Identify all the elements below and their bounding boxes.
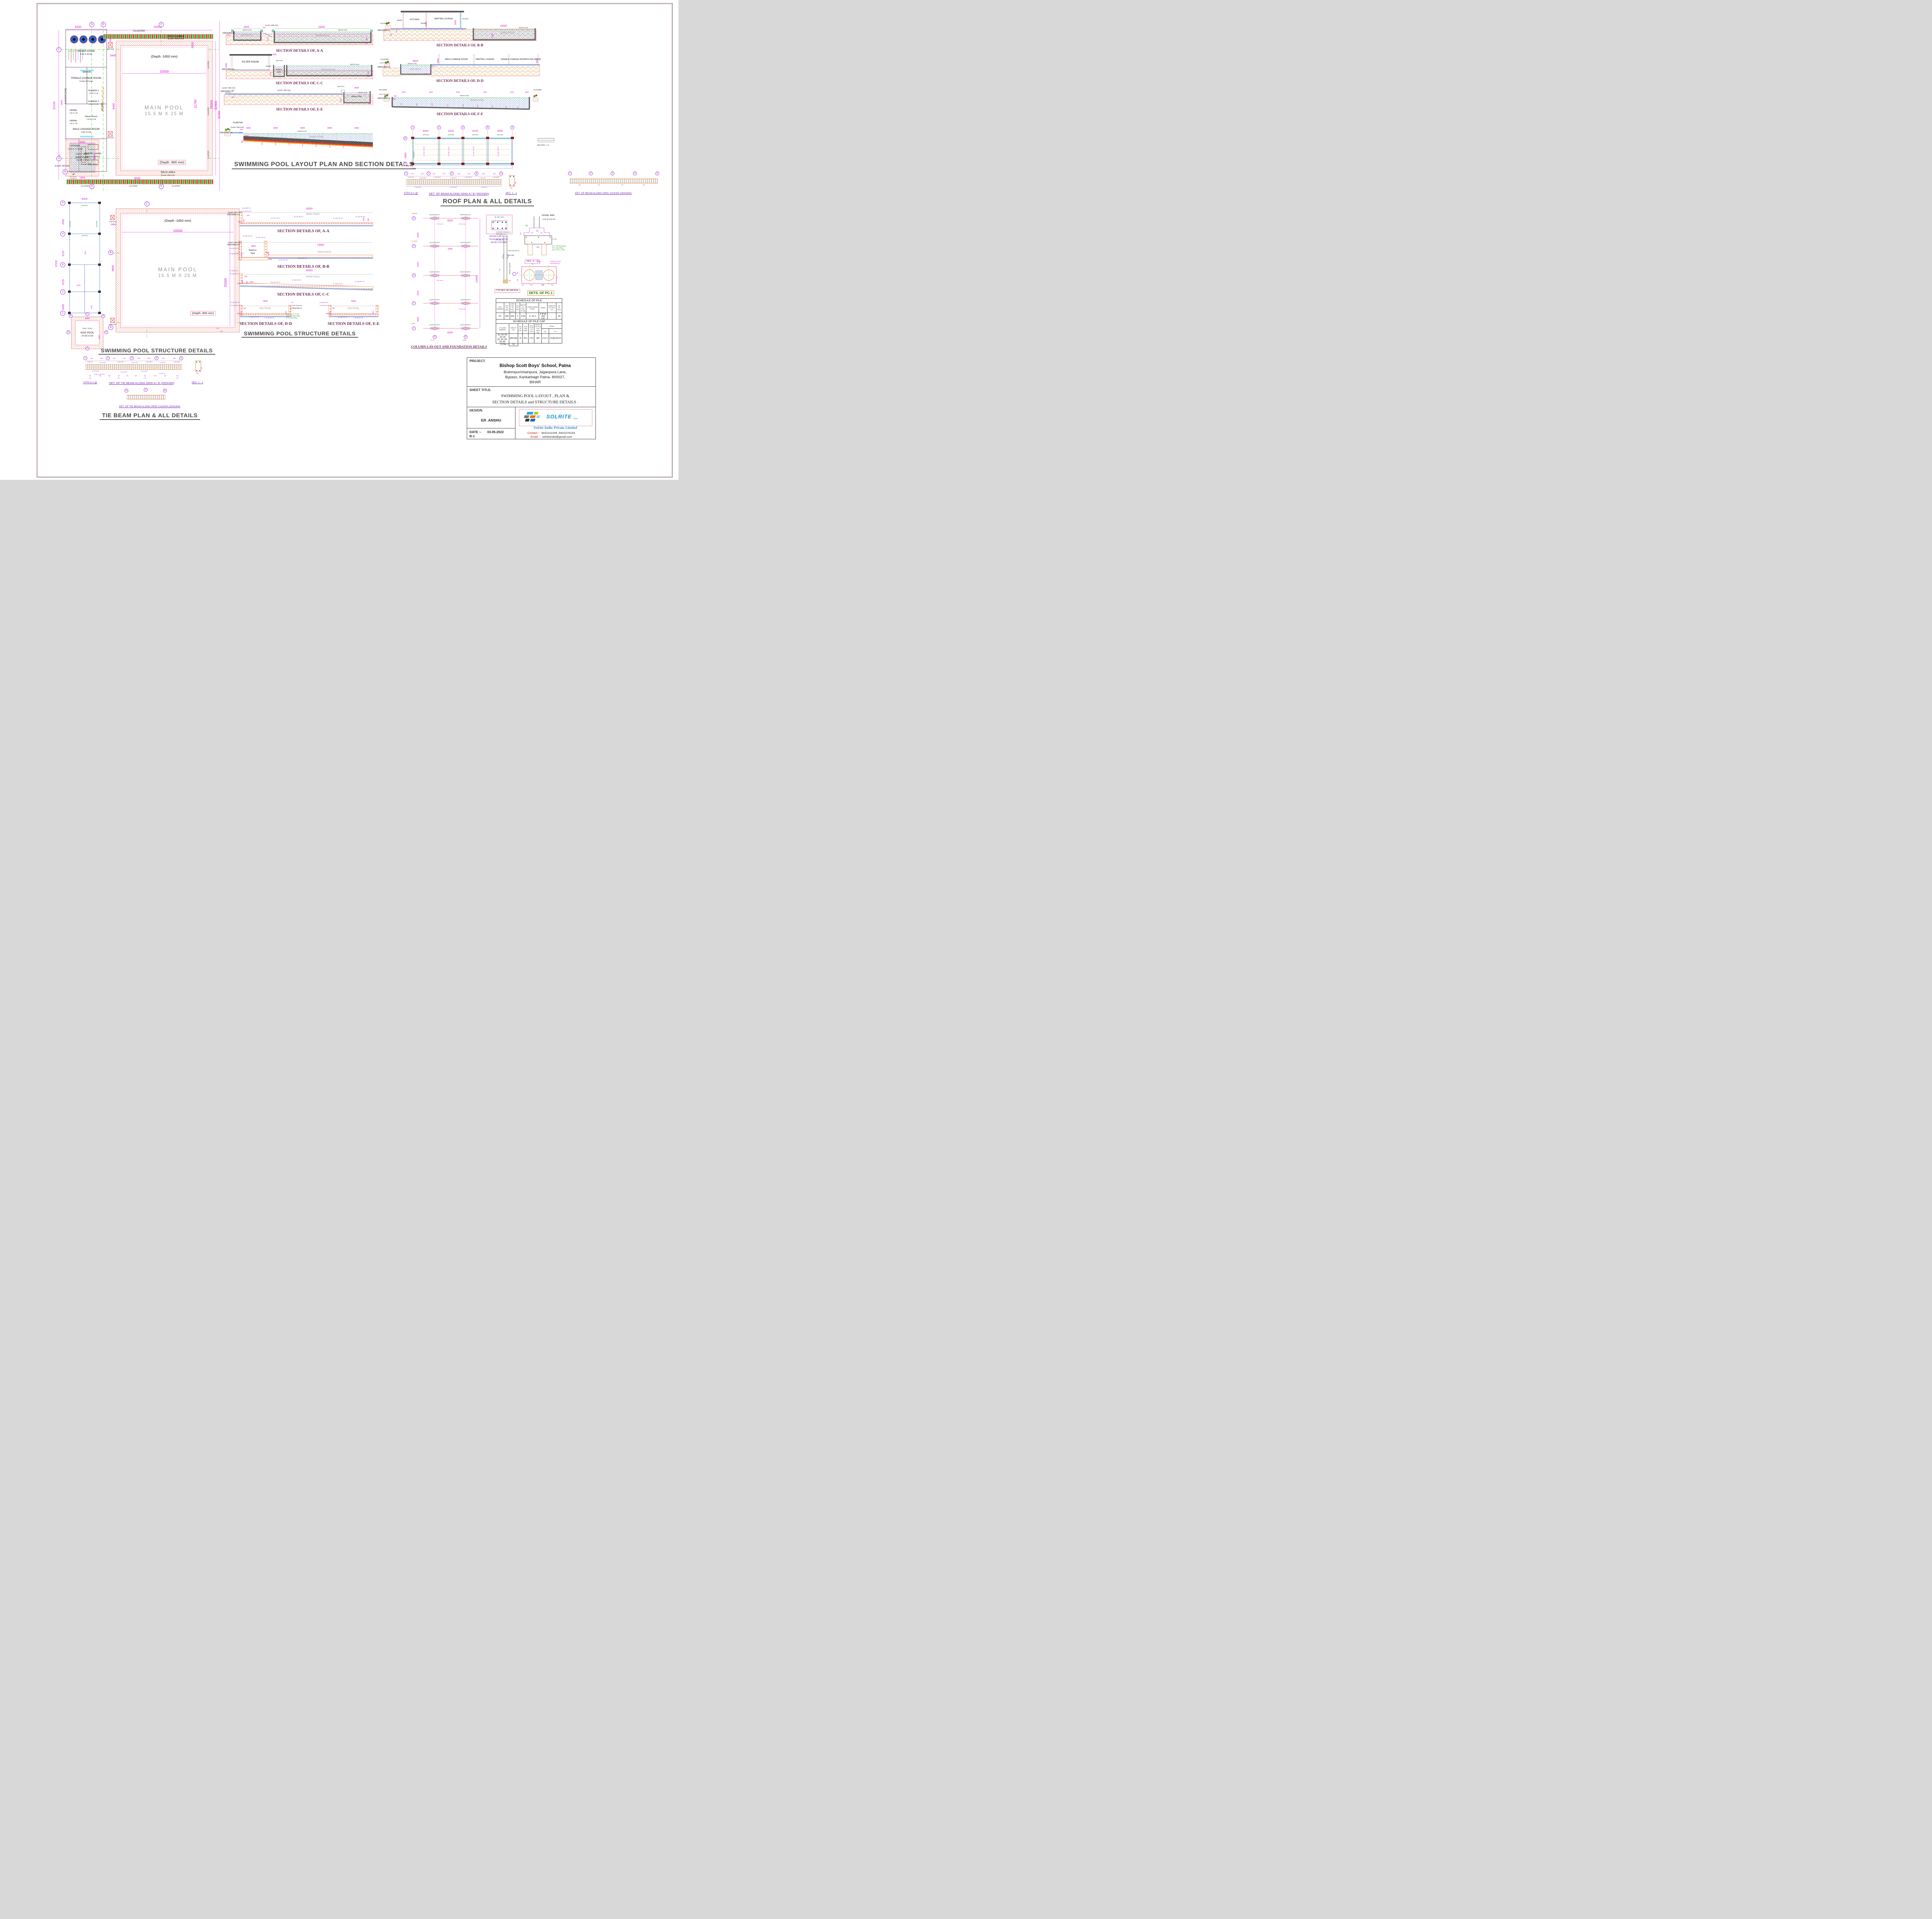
grid-bubble: 3 (130, 356, 134, 360)
rebar-label: 8 # @ 150 C/C (231, 302, 240, 304)
dim: 900 (366, 37, 368, 41)
grid-bubble: E (101, 22, 106, 27)
dim: 300 (394, 95, 397, 97)
grid-bubble: C (145, 201, 150, 206)
grid-bubble: 3 (611, 172, 614, 175)
dim: 200 (598, 185, 600, 186)
col-header: PILE DIA (mm) (504, 303, 510, 313)
grid-bubble: 3 (461, 126, 465, 129)
dim: 300 (237, 283, 240, 285)
grid-bubble: 2 (427, 172, 430, 175)
planter-label: PLANTER (381, 23, 389, 25)
dim: 1500 (241, 253, 243, 257)
roof-plan-drawing (402, 126, 522, 171)
roof-title: ROOF PLAN & ALL DETAILS (440, 199, 534, 206)
struct-section-aa: (Level +600 mm) GROUND LV. 8 # @ 150 C/C… (232, 209, 375, 227)
dim: 4976 (91, 305, 93, 309)
dim: 21849 (476, 275, 479, 282)
water-level: WATER LEVEL (519, 27, 528, 29)
dowel-label: DOWEL BAR (542, 215, 554, 217)
plaster-label: PLASTER (81, 185, 89, 187)
dim: 3000 (402, 92, 406, 93)
dim: 3000 (455, 20, 457, 25)
cell: 6-12 # (541, 334, 549, 343)
col-header: PILE MARKED (496, 303, 504, 313)
level-label: (Level +500 mm) (277, 90, 291, 92)
ground-level: GROUND LV. (378, 98, 390, 100)
cell-line: B1, B2, B3, B4, B5 (498, 338, 507, 343)
structure-sections-title: SWIMMING POOL STRUCTURE DETAILS (241, 331, 358, 338)
grid-bubble: 2 (437, 126, 441, 129)
dim: 6000 (63, 304, 65, 309)
beam-size: (250X400) (82, 235, 88, 237)
dim: 3000 (273, 127, 278, 130)
rebar-label: MAIN BAR (508, 255, 514, 257)
rebar-label: 12 # @ 175 C/C (333, 218, 343, 219)
dim: 450 (530, 285, 532, 286)
room-size: 1.5 M X 2 M (87, 119, 96, 121)
rebar-label: 1-16 # EXT. (117, 362, 124, 363)
column-layout-drawing (417, 211, 483, 342)
dim: 150 (108, 376, 111, 377)
pool-name: KID POOL (348, 308, 360, 310)
grid-bubble: D (66, 330, 70, 334)
grid-bubble: A (403, 136, 407, 140)
section-dd-drawing (381, 54, 541, 77)
dim: 225 (126, 376, 128, 377)
dim: 3150 (267, 37, 269, 41)
tie-beam-drawing (124, 390, 168, 404)
level-label: (Level +600 mm) (380, 63, 390, 64)
dim: 175 (134, 376, 137, 377)
manhole-label: MAN HOLE (107, 138, 114, 139)
struct-aa-drawing (232, 209, 375, 227)
manhole-label: MAN HOLE (276, 60, 283, 62)
dim: 1161 (447, 104, 449, 107)
ground-level: GROUND LV. (222, 69, 235, 71)
room-size: 2.275 M X 4.975 M (68, 148, 83, 150)
dim: 2050 (457, 173, 460, 175)
dim: 1750 (432, 173, 435, 175)
dim: 300 (517, 279, 519, 281)
project-name: Bishop Scott Boys' School, Patna (500, 364, 571, 369)
planter-label: PLANTER (133, 30, 145, 33)
col-header: NO OF PILE (556, 303, 562, 313)
rebar-label: 10 # @ 200 C/C (298, 258, 307, 260)
dim: 175 (117, 376, 120, 377)
dim: 1500 (370, 97, 372, 100)
tie-title: TIE BEAM PLAN & ALL DETAILS (100, 413, 200, 420)
dim: 1650 (368, 71, 370, 75)
pile-typ-detail: EXISTING GROUND LV (ORIGINAL G.L.) CUT O… (495, 231, 515, 287)
dim: 1500 (162, 358, 165, 360)
level-label: (Level +600 mm) (379, 94, 389, 95)
dim: 1000 (525, 92, 529, 93)
total-label: TOTAL = (496, 343, 509, 346)
grid-bubble: E (85, 347, 89, 350)
grid-bubble: 3 (450, 172, 454, 175)
rebar-label: 10 # @ 175 C/C (256, 237, 265, 239)
ground-note: EXISTING GROUND LV (496, 232, 511, 233)
dim: 32400 (214, 101, 218, 110)
dim: 50 (462, 28, 464, 30)
ref-label: (h) (536, 230, 539, 232)
rebar-label: 10 # @ 150 C/C (230, 274, 239, 275)
grid-bubble: 4 (60, 231, 65, 236)
water-level: WATER LEVEL (243, 30, 252, 31)
tank-label: Balance (276, 69, 282, 71)
column-mark: B5(250X400)PC1 (460, 214, 471, 216)
sheet-title-label: SHEET TITLE. (469, 388, 492, 392)
schedule-of-pile-cap: SCHEDULE OF PILE CAP COLUMN MARKED SIZE … (496, 319, 562, 346)
dim: 2050 (147, 358, 150, 360)
room-label: CHANGE-2 (88, 101, 99, 103)
level-label: (Level +600 mm) (228, 212, 241, 214)
dim: 225 (643, 185, 645, 186)
column-mark: B4(250X400)PC1 (460, 242, 471, 244)
level-label: (Level +600 mm) (222, 87, 235, 89)
dim: 1800 (80, 177, 85, 180)
sheet-title-row: SHEET TITLE. SWIMMING POOL LAYOUT , PLAN… (467, 387, 595, 407)
dim: 1609 (276, 143, 277, 146)
pool-name: KIDS POOL (241, 35, 253, 37)
rebar-label: 12 # @ 175 C/C (333, 284, 343, 285)
column-mark: A4(250X400)PC1 (429, 242, 440, 244)
cutoff-label: CUT OFF LV. (495, 240, 503, 241)
plaster-label: PLASTER (129, 185, 138, 187)
col-header: DEPTH OF PILE 'D' (M) (520, 303, 526, 313)
rebar-label: 2-12# TH. (160, 362, 166, 364)
col-header: LONGITUDINAL STEEL (526, 303, 539, 313)
pool-name: MAIN POOL (470, 99, 484, 102)
note: 75 Th. Flat Brick Soling (552, 246, 566, 247)
note: 75 ℄ of col. (437, 280, 443, 282)
pile-typ-caption: TYP DET. OF U/R PILE (495, 289, 520, 293)
dim: 4500 (85, 318, 90, 320)
dim: 300 (231, 97, 235, 99)
dim: 6000 (448, 248, 452, 251)
grid-bubble: 4 (474, 172, 478, 175)
section-caption: SECTION DETAILS OF, F-F (437, 113, 483, 117)
ground-level: GROUND LV. (378, 30, 390, 32)
dim: 150 (578, 185, 581, 186)
rebar-label: 10 # @ 200 C/C (355, 281, 364, 283)
dim: 3000 (537, 58, 539, 63)
grid-bubble: 5 (60, 201, 65, 206)
section-bb-drawing (381, 10, 539, 42)
room-label: WAITING LOUNGE (476, 59, 494, 61)
email-value: solriteindia@gmail.com (542, 435, 572, 439)
dim: 6000 (61, 100, 64, 105)
dim: 150 (176, 376, 179, 377)
section-caption: SECTION DETAILS OF, E-E (276, 108, 323, 112)
rebar-label: 2-16 # EXT. (415, 187, 422, 189)
dim: 1000 (245, 135, 248, 137)
detail-caption: SEC. 1 - 1 (505, 192, 517, 195)
roof-plan: 1 2 3 4 5 A B 6000 5226 6125 4500 (250X4… (402, 126, 522, 171)
dim: 600 (557, 277, 558, 279)
rebar-label: 8 # @ 150 C/C (230, 270, 238, 272)
grid-bubble: 5 (510, 126, 514, 129)
section-caption: SECTION DETAILS OF, D-D (240, 322, 292, 326)
dim: 15500 (317, 244, 324, 247)
dim: 6000 (423, 130, 429, 133)
section-cc: FILTER ROOM DOOR 3000 600 MAN HOLE Balan… (224, 54, 375, 80)
brand-name: SOLRITE (546, 414, 572, 420)
dim: 150 (231, 90, 235, 92)
grid-bubble: 1 (412, 326, 416, 330)
tie-beam-detail-2: A 2 B (124, 390, 168, 404)
cell: 12#@125C/C (549, 334, 562, 343)
plaster-label: PLASTER (208, 61, 210, 69)
dim: 32400 (218, 111, 221, 119)
note: 75 Th. Sand Filling (286, 318, 297, 319)
project-address: Bypass, Kankarbagh Patna- 800027, (505, 376, 565, 379)
table-title: SCHEDULE OF PILE CAP (496, 320, 562, 324)
tie-sec-1-1: 450 250 (193, 359, 205, 376)
dim: 15500 (160, 70, 169, 73)
note: 75 Th. Sand Filling (552, 248, 563, 249)
dim: 1715 (289, 143, 291, 146)
dim: 200 (432, 66, 435, 68)
col-header: DEPTH OF PILE CAP (mm) (D) (534, 324, 542, 334)
dim: 1200 (340, 98, 342, 102)
planter-strip (103, 34, 213, 39)
dim: 3000 (191, 42, 194, 49)
dim: 3000 (483, 92, 487, 93)
dim: 200 (520, 233, 522, 235)
col-header: NO OF COL. (518, 324, 522, 334)
dim: 1750 (122, 358, 126, 360)
grid-bubble: 1 (83, 356, 87, 360)
plaster-label: PLASTER (208, 151, 210, 159)
pool-name: KID POOL (260, 308, 272, 310)
rebar-label: 8 # @ 150 C/C (242, 208, 251, 209)
room-label: FEMALE CHANGE ROOM (71, 77, 101, 80)
rebar-label: 2-12# TH. (87, 362, 93, 363)
dim: 250 (263, 27, 266, 29)
section-ee: (Level +600 mm) GROUND LV. 150 300 (Leve… (222, 87, 375, 107)
project-row: PROJECT. Bishop Scott Boys' School, Patn… (467, 358, 595, 387)
dim: 450 (330, 312, 332, 315)
column-mark: A3(250X400)PC1 (429, 272, 440, 273)
grid-bubble: 2 (106, 356, 110, 360)
deck-level: (Level +600 mm) (168, 38, 184, 41)
pool-name: KIDS POOL (410, 69, 422, 71)
dim: 200 (99, 376, 101, 377)
rebar-label: 2-16 # TH. (480, 178, 486, 179)
project-address: BIHAR (529, 381, 541, 384)
dim: 4500 (263, 301, 268, 303)
pool-size: 15.5 M X 25 M (158, 274, 197, 279)
room-size: 6 M X 4.5 M (80, 54, 92, 56)
unit: C/C (144, 378, 146, 379)
level-label: +000 (462, 340, 466, 342)
dim: 1400 (537, 261, 541, 263)
dim: 1500 (482, 173, 485, 175)
grid-bubble: 3 (60, 262, 65, 267)
pc1-caption: DETS. OF PC-1 (527, 291, 554, 296)
stirrup-note: STPS 8 # @ (404, 192, 418, 195)
detail-caption: SEC. 1 - 1 (192, 382, 203, 384)
rebar-label: 12 # @ 175 C/C (278, 260, 288, 261)
dim: 1750 (442, 173, 446, 175)
sec-1-1-drawing (193, 359, 205, 376)
dim: 5226 (63, 279, 65, 285)
grid-bubble: B (108, 250, 113, 255)
solrite-logo-icon (522, 410, 546, 426)
ground-level: GROUND LV. (220, 132, 233, 134)
beam-size: (250X450) (497, 134, 503, 136)
rebar-label: 2-16 # EXT. (450, 187, 457, 189)
pc1-drawing (517, 264, 560, 287)
cell: 250X400 (509, 334, 518, 343)
level-label: (Level +600 mm) (292, 305, 302, 307)
design-row: DESIGN. ER .ANSHU DATE :- 03.05.2022 R-1… (467, 407, 595, 439)
section-dd: PLANTER (Level +600 mm) GROUND LV. 4500 … (381, 54, 541, 77)
grid-bubble: B (63, 169, 68, 174)
revision: R-1 (469, 435, 475, 438)
room-label: URINAL (70, 110, 77, 112)
room-label: KITCHEN (410, 19, 419, 21)
dim: 150 (164, 376, 166, 377)
dim: 250 (551, 285, 553, 286)
dim: 6250 (75, 25, 82, 29)
water-level: WATER LEVEL (460, 95, 469, 97)
plaster-label: PLASTER (208, 107, 210, 116)
dim: 250 (196, 373, 199, 375)
pool-name: MAIN POOL (501, 32, 515, 35)
rebar-label: 10 # @ 175 C/C (424, 146, 425, 156)
dim: 2050 (467, 173, 470, 175)
col-header: RINGS (539, 303, 548, 313)
dim: 900 (247, 281, 248, 284)
dim: 2000 (421, 173, 424, 175)
dim: 125 (291, 302, 293, 304)
dim: 6000 (405, 153, 408, 158)
tie-beam-detail-1: 1 2 3 4 5 2000 2000 1750 1750 2050 2050 … (83, 359, 192, 376)
column-mark: B1(250X400)PC1 (460, 325, 471, 326)
grid-bubble: E (85, 312, 89, 316)
dim: 600 (509, 280, 511, 282)
tank-label: Tank (277, 71, 281, 73)
col-header: ( h ) (549, 329, 562, 334)
water-level: WATER LEVEL (338, 30, 347, 31)
dim: 900 (368, 218, 370, 221)
dim: 22100 (56, 260, 58, 267)
rebar-label: 10 # @ 150 C/C (231, 305, 240, 307)
dim: 1200 (270, 72, 272, 76)
rebar-label: 10 # @ 200 C/C (294, 216, 303, 218)
dim: 6125 (418, 262, 420, 267)
dim: 6125 (63, 251, 65, 256)
detail-caption: DET. OF BEAM ALONG GRID 1/2/3/4/5 (250X4… (575, 192, 632, 195)
dim: 1500 (173, 358, 176, 360)
column-mark: A5(250X400)PC1 (429, 214, 440, 216)
pool-size: 15.5 M X 25 M (145, 112, 184, 117)
column-layout-title: COLUMN LAY-OUT AND FOUNDATION DETAILS (411, 345, 487, 348)
sec-1-1-drawing (507, 174, 519, 191)
layout-plan: D E F C A B D F PLANTER 6250 22200 1800 … (58, 5, 222, 199)
room-size: 1 M X 1 M (70, 112, 78, 114)
bucket-label: BUCKET LENGTH (510, 263, 511, 274)
grid-bubble: D (104, 330, 108, 334)
dim: 4800 (251, 246, 256, 248)
grid-bubble: D (89, 22, 94, 27)
pool-name: MAIN POOL (145, 105, 184, 110)
brand-suffix: INDIA (573, 418, 578, 420)
dim: 2114 (343, 145, 345, 148)
dim: 6125 (473, 130, 478, 133)
dim: 11700 (194, 99, 197, 108)
dim: 3000 (456, 92, 460, 93)
col-header: CAPACITY OF PILE (T) (548, 303, 556, 313)
section-aa: GROUND LV. 600 4500 WATER LEVEL 250 (Lev… (224, 27, 375, 47)
dim: 3000 (438, 58, 440, 63)
cell: A1, A2, A3 ,A4, A5B1, B2, B3, B4, B5 (496, 334, 509, 343)
section-caption: SECTION DETAILS OF, E-E (328, 322, 379, 326)
room-size: 6 mm X 6 mm (80, 81, 93, 83)
dim: 2000 (90, 358, 93, 360)
level-label: (Level +600 mm) (228, 242, 241, 244)
deck-label: DECK AREA (161, 172, 175, 174)
dim: 300 (365, 42, 368, 44)
table-title: SCHEDULE OF PILE (496, 299, 562, 303)
grid-bubble: 4 (633, 172, 637, 175)
level-label: +0'-0" (430, 340, 435, 342)
ped-label: (600X600X200) (550, 263, 560, 265)
depth-label: (Depth -1650 mm) (165, 219, 191, 223)
room-label: MALE CHANGE ROOM (73, 128, 99, 131)
dim: 600 (227, 35, 230, 37)
dim: 450 (268, 252, 270, 255)
section-cc-drawing (224, 54, 375, 80)
dim: 1355 (478, 105, 479, 108)
cell: PC1 (523, 334, 529, 343)
grid-bubble: 2 (60, 289, 65, 294)
rebar-label: 8 Tor @ 100 C/C (543, 219, 556, 221)
roof-section-aa: SECTION - A-A (537, 136, 556, 148)
dim: 2100 (426, 22, 428, 26)
up-label: UP (72, 174, 75, 176)
beam-size: (250X400) (82, 205, 88, 207)
dim: 2200 (77, 285, 80, 287)
project-label: PROJECT. (469, 359, 486, 363)
p-bubble (512, 272, 516, 276)
rebar-label: 12 # @ 175 C/C (270, 282, 280, 284)
ground-level: GROUND LV. (227, 214, 240, 216)
room-label: FILTER ROOM (78, 50, 95, 53)
contact-value: 9431011006 ,9431076164 (541, 432, 575, 435)
pool-name: MAIN POOL (306, 213, 320, 216)
level-label: (Level +600 mm) (231, 127, 244, 129)
col-header: STEEL (541, 324, 562, 329)
dim: 3000 (354, 127, 359, 130)
room-label: MALE CHANGE ROOM (445, 59, 468, 61)
room-label: SHOWER ZONE (65, 88, 68, 104)
dim: 450 (531, 233, 533, 234)
dim: 15500 (173, 229, 182, 233)
tank-label: Balance (249, 250, 257, 252)
date-value: 03.05.2022 (487, 430, 504, 434)
level-label: (Level +450 mm) (81, 164, 97, 166)
rebar-label: 12 # @ 175 C/C (338, 317, 348, 318)
dim: 1750 (112, 358, 116, 360)
dim: 300 (366, 76, 369, 78)
dim: 200 (216, 328, 219, 330)
dim: 150 (243, 308, 246, 309)
manhole-label: MAN HOLE (337, 86, 344, 88)
